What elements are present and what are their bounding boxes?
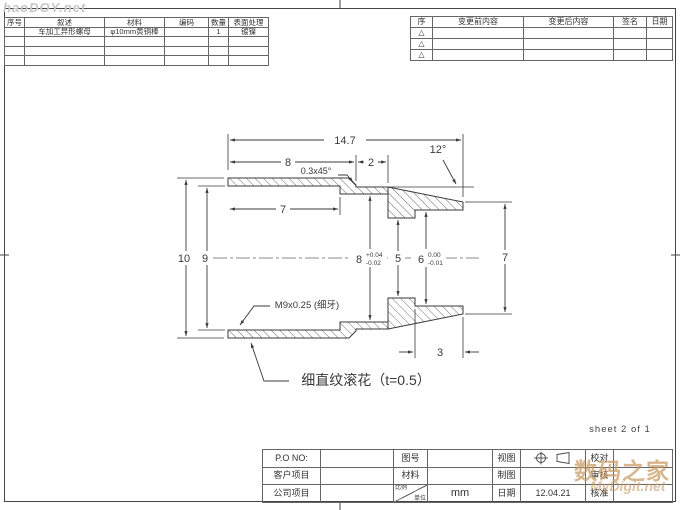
empty-cell (614, 39, 647, 50)
revision-marker-icon: △ (411, 28, 433, 39)
dim-bore6-tol-upper: 0.00 (428, 252, 441, 259)
bom-row: 车加工异形螺母 φ10mm黄铜棒 1 镀镍 (5, 27, 269, 37)
dim-mid-length: 2 (368, 157, 374, 169)
revision-row: △ (411, 28, 673, 39)
empty-cell (524, 28, 614, 39)
dim-thread-diameter: 9 (202, 253, 208, 265)
dim-bore6-tol-lower: -0.01 (428, 260, 443, 267)
empty-cell (5, 46, 25, 56)
projection-symbol-icon (533, 451, 573, 465)
empty-cell (524, 50, 614, 61)
rev-header-sign: 签名 (614, 17, 647, 28)
knurl-note: 细直纹滚花（t=0.5） (301, 372, 431, 388)
drawing-no-label: 图号 (394, 450, 428, 468)
revision-row: △ (411, 39, 673, 50)
rev-header-date: 日期 (647, 17, 673, 28)
date-label: 日期 (493, 485, 521, 503)
watermark-logo: haoDOY.net (3, 0, 86, 15)
po-number-value (321, 450, 394, 468)
scale-label: 比例 (395, 485, 407, 491)
revision-table: 序 变更前内容 变更后内容 签名 日期 △ △ △ (410, 16, 673, 61)
dim-tip-diameter: 7 (502, 252, 508, 264)
empty-cell (524, 39, 614, 50)
company-project-label: 公司项目 (263, 485, 321, 503)
dimension-labels: 14.7 8 2 12° 0.3x45° 7 10 9 8 +0.04 -0.0… (178, 135, 508, 388)
upper-sleeve-wall (228, 178, 388, 194)
customer-project-label: 客户项目 (263, 467, 321, 485)
lower-sleeve-wall (228, 322, 388, 338)
empty-cell (433, 28, 524, 39)
dim-bore8-tol-lower: -0.02 (366, 260, 381, 267)
empty-cell (25, 46, 105, 56)
dim-bore8-tol-upper: +0.04 (366, 252, 383, 259)
dim-taper-angle: 12° (430, 144, 447, 156)
date-value: 12.04.21 (521, 485, 586, 503)
empty-cell (647, 50, 673, 61)
sheet-note: sheet 2 of 1 (570, 424, 670, 435)
empty-cell (647, 28, 673, 39)
bom-header-code: 编码 (165, 18, 209, 28)
drawing-no-value (428, 450, 493, 468)
bom-header-row: 序号 叙述 材料 编码 数量 表面处理 (5, 18, 269, 28)
revision-marker-icon: △ (411, 50, 433, 61)
bom-cell-finish: 镀镍 (229, 27, 269, 37)
rev-header-after: 变更后内容 (524, 17, 614, 28)
empty-cell (209, 56, 229, 66)
revision-row: △ (411, 50, 673, 61)
empty-cell (5, 56, 25, 66)
bom-row (5, 46, 269, 56)
customer-project-value (321, 467, 394, 485)
dim-knurl-length: 8 (285, 157, 291, 169)
dim-bore6: 6 (418, 254, 424, 266)
dim-tip-length: 3 (437, 347, 443, 359)
empty-cell (614, 50, 647, 61)
empty-cell (433, 50, 524, 61)
dim-chamfer: 0.3x45° (301, 166, 332, 176)
scale-unit-diagonal: 比例 单位 (394, 485, 427, 502)
bom-header-desc: 叙述 (25, 18, 105, 28)
bom-cell-qty: 1 (209, 27, 229, 37)
empty-cell (229, 56, 269, 66)
thread-note: M9x0.25 (细牙) (275, 299, 339, 311)
bom-row (5, 56, 269, 66)
dimension-lines (186, 140, 505, 381)
dim-overall-length: 14.7 (334, 135, 355, 147)
bom-header-finish: 表面处理 (229, 18, 269, 28)
empty-cell (25, 56, 105, 66)
empty-cell (209, 46, 229, 56)
empty-cell (165, 37, 209, 47)
rev-header-seq: 序 (411, 17, 433, 28)
unit-value: mm (428, 485, 493, 503)
bom-header-serial: 序号 (5, 18, 25, 28)
revision-marker-icon: △ (411, 39, 433, 50)
draft-label: 制图 (493, 467, 521, 485)
bom-table: 序号 叙述 材料 编码 数量 表面处理 车加工异形螺母 φ10mm黄铜棒 1 镀… (4, 17, 269, 66)
lower-cone-wall (388, 298, 463, 329)
company-project-value (321, 485, 394, 503)
bom-cell-desc: 车加工异形螺母 (25, 27, 105, 37)
bom-header-qty: 数量 (209, 18, 229, 28)
scale-unit-cell: 比例 单位 (394, 485, 428, 503)
empty-cell (105, 37, 165, 47)
dim-thread-depth: 7 (280, 204, 286, 216)
bom-cell-material: φ10mm黄铜棒 (105, 27, 165, 37)
empty-cell (647, 39, 673, 50)
rev-header-before: 变更前内容 (433, 17, 524, 28)
empty-cell (165, 56, 209, 66)
bom-cell-serial (5, 27, 25, 37)
upper-cone-wall (388, 187, 463, 218)
empty-cell (105, 46, 165, 56)
empty-cell (25, 37, 105, 47)
unit-label: 单位 (414, 496, 426, 502)
empty-cell (229, 37, 269, 47)
po-number-label: P.O NO: (263, 450, 321, 468)
drawing-sheet: 14.7 8 2 12° 0.3x45° 7 10 9 8 +0.04 -0.0… (0, 0, 680, 510)
dim-bore5: 5 (395, 253, 401, 265)
material-value (428, 467, 493, 485)
empty-cell (614, 28, 647, 39)
material-label: 材料 (394, 467, 428, 485)
empty-cell (165, 46, 209, 56)
dim-bore8: 8 (356, 254, 362, 266)
empty-cell (5, 37, 25, 47)
bom-row (5, 37, 269, 47)
dim-outer-diameter: 10 (178, 253, 190, 265)
empty-cell (229, 46, 269, 56)
revision-header-row: 序 变更前内容 变更后内容 签名 日期 (411, 17, 673, 28)
bom-header-material: 材料 (105, 18, 165, 28)
empty-cell (105, 56, 165, 66)
watermark-brand-en: MyDigit.net (590, 478, 665, 494)
view-label: 视图 (493, 450, 521, 468)
bom-cell-code (165, 27, 209, 37)
empty-cell (433, 39, 524, 50)
empty-cell (209, 37, 229, 47)
